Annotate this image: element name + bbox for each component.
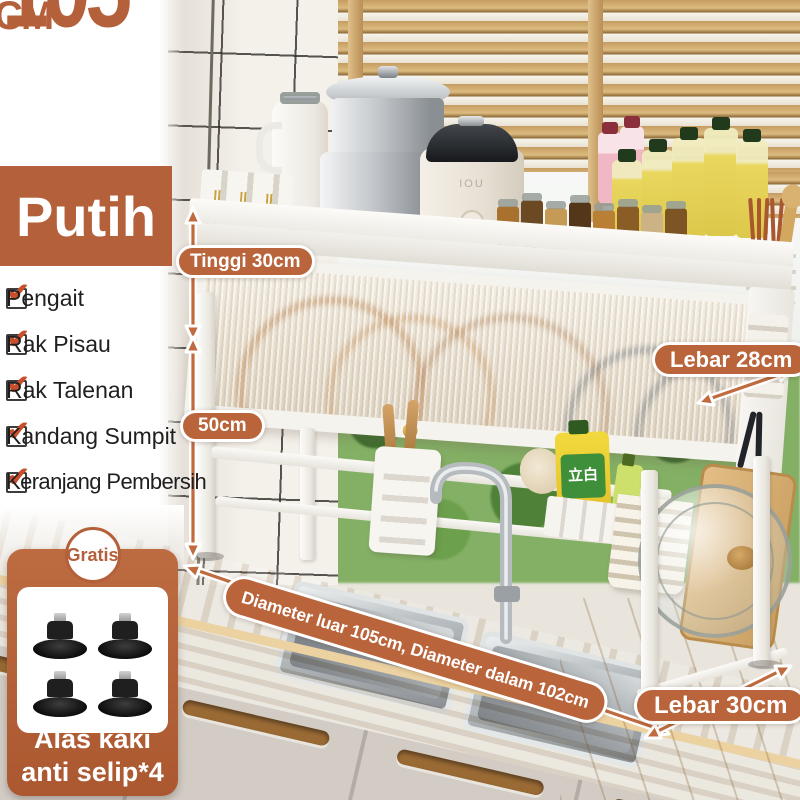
feature-item: ✔ Pengait: [6, 286, 206, 310]
suction-feet-image: [17, 587, 168, 733]
freebie-caption: Alas kaki anti selip*4: [7, 723, 178, 791]
rack-leg-inner: [300, 428, 315, 560]
feature-item: ✔ Rak Pisau: [6, 332, 206, 356]
detergent-label: 立白: [560, 453, 606, 499]
dimension-label-lebar30: Lebar 30cm: [634, 687, 800, 724]
feature-item: ✔ Kandang Sumpit: [6, 424, 206, 448]
faucet: [398, 438, 548, 648]
variant-badge: Putih: [0, 166, 172, 266]
suction-foot: [96, 671, 154, 719]
freebie-card: Gratis Alas kaki anti selip*4: [7, 549, 178, 796]
suction-foot: [31, 671, 89, 719]
suction-foot: [96, 613, 154, 661]
feature-item: ✔ Rak Talenan: [6, 378, 206, 402]
cooker-glass-lid: [426, 124, 518, 162]
oil-bottle: [704, 128, 738, 236]
foot-pad: [190, 552, 224, 561]
feature-item: ✔ Keranjang Pembersih: [6, 470, 206, 494]
dimension-label-lebar28: Lebar 28cm: [652, 342, 800, 377]
product-listing-image: IOU: [0, 0, 800, 800]
feature-list: ✔ Pengait ✔ Rak Pisau ✔ Rak Talenan ✔ Ka…: [6, 286, 206, 516]
dimension-label-tinggi: Tinggi 30cm: [176, 245, 315, 278]
steamer-lid-knob: [378, 66, 398, 78]
foot-pad: [748, 660, 782, 669]
gratis-badge: Gratis: [65, 527, 121, 583]
rack-leg-right: [641, 470, 658, 702]
rack-leg-right-outer: [753, 456, 770, 666]
cooker-brand-text: IOU: [420, 178, 524, 190]
size-unit: CM: [0, 0, 52, 34]
suction-foot: [31, 613, 89, 661]
